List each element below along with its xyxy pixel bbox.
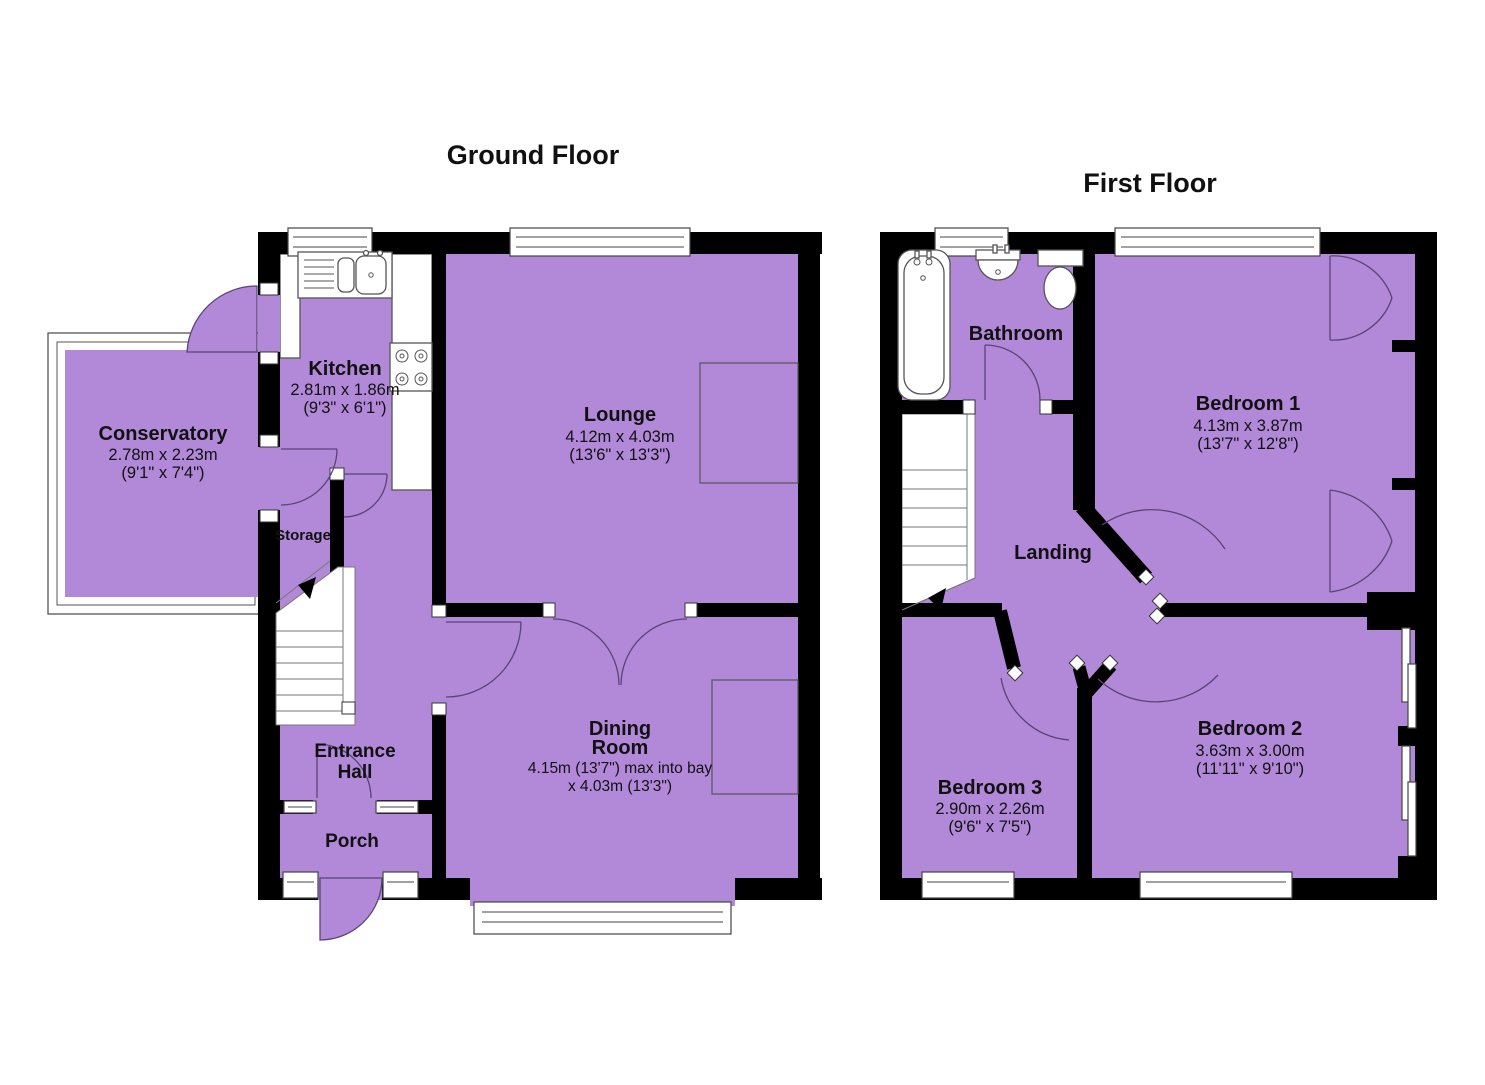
room-dim-label: (9'6" x 7'5") [948,818,1031,836]
sash-window [1408,782,1416,856]
ground-floor-plan: Ground Floor [48,140,822,940]
room-dim-label: (9'3" x 6'1") [303,399,386,417]
room-dim-label: (11'11" x 9'10") [1196,760,1304,778]
first-floor-plan: First Floor [880,168,1437,900]
wall-segment [1398,726,1415,746]
tap-icon [993,245,997,253]
window [1140,872,1292,898]
door-jamb [260,510,278,522]
first-floor-title: First Floor [1083,168,1217,198]
door-jamb [963,400,975,414]
basin-icon [976,250,1020,260]
door-opening [258,447,280,510]
wall-segment [1415,232,1437,900]
door-opening [975,400,1040,414]
room-label: Room [592,737,649,759]
wall-segment [1077,688,1092,878]
door-jamb [685,603,697,617]
sink-bowl-icon [338,258,354,292]
room-dim-label: (9'1" x 7'4") [121,464,204,482]
room-dim-label: 2.81m x 1.86m [290,381,399,399]
room-label: Porch [325,831,379,852]
newel-post [342,702,355,714]
room-label: Bathroom [969,323,1063,345]
door-leaf [187,286,257,352]
door-jamb [1040,400,1052,414]
room-label: Kitchen [308,358,381,380]
door-jamb [432,703,446,715]
room-label: Bedroom 2 [1198,718,1302,740]
room-dim-label: 4.12m x 4.03m [565,428,674,446]
door-jamb [260,435,278,447]
tap-icon [364,251,369,256]
room-dim-label: 4.15m (13'7") max into bay [528,760,712,777]
wall-segment [330,480,344,572]
wall-segment [1392,478,1415,490]
front-door-leaf [320,878,382,940]
door-jamb [260,352,278,364]
wall-segment [1392,340,1415,352]
door-jamb [432,605,446,617]
wall-segment [1367,592,1415,630]
sash-window [1408,664,1416,728]
door-opening [258,295,280,352]
sink-bowl-icon [356,256,386,294]
window [922,872,1014,898]
toilet-bowl-icon [1044,267,1076,309]
room-label: Storage [275,527,331,544]
floorplan-canvas: Ground Floor [0,0,1485,1080]
double-door-opening [553,603,685,617]
wall-segment [432,254,446,878]
window [510,228,690,256]
ground-floor-plate [280,254,798,878]
floorplan-page: Ground Floor [0,0,1485,1080]
wall-segment [1398,856,1415,878]
wall-segment [798,232,820,900]
room-label: Bedroom 1 [1196,393,1300,415]
room-label: Lounge [584,404,656,426]
wall-segment [902,603,1002,617]
room-dim-label: 2.90m x 2.26m [935,800,1044,818]
door-jamb [330,468,344,480]
kitchen-sink-unit [298,251,392,299]
tap-icon [378,251,383,256]
tap-icon [927,251,931,258]
room-label: Hall [338,762,373,783]
room-dim-label: 2.78m x 2.23m [108,446,217,464]
window [283,872,318,898]
room-dim-label: x 4.03m (13'3") [568,778,672,795]
bay-window-frame [474,902,731,934]
bay-window [470,878,735,934]
tap-icon [915,251,919,258]
stairwell-void [902,414,975,610]
toilet-cistern-icon [1038,250,1083,266]
door-jamb [543,603,555,617]
bathtub-inner [904,256,944,394]
door-jamb [260,283,278,295]
kitchen-counter [280,254,300,358]
tap-icon [1005,245,1009,253]
window [1115,228,1320,256]
ground-floor-title: Ground Floor [447,140,620,170]
room-label: Entrance [314,741,395,762]
window [383,872,418,898]
room-dim-label: (13'7" x 12'8") [1197,435,1298,453]
room-label: Landing [1014,542,1092,564]
door-opening [313,800,377,814]
room-dim-label: (13'6" x 13'3") [569,446,670,464]
room-label: Bedroom 3 [938,777,1042,799]
room-dim-label: 4.13m x 3.87m [1193,417,1302,435]
door-opening [432,617,446,703]
room-dim-label: 3.63m x 3.00m [1195,742,1304,760]
room-label: Conservatory [99,423,229,445]
